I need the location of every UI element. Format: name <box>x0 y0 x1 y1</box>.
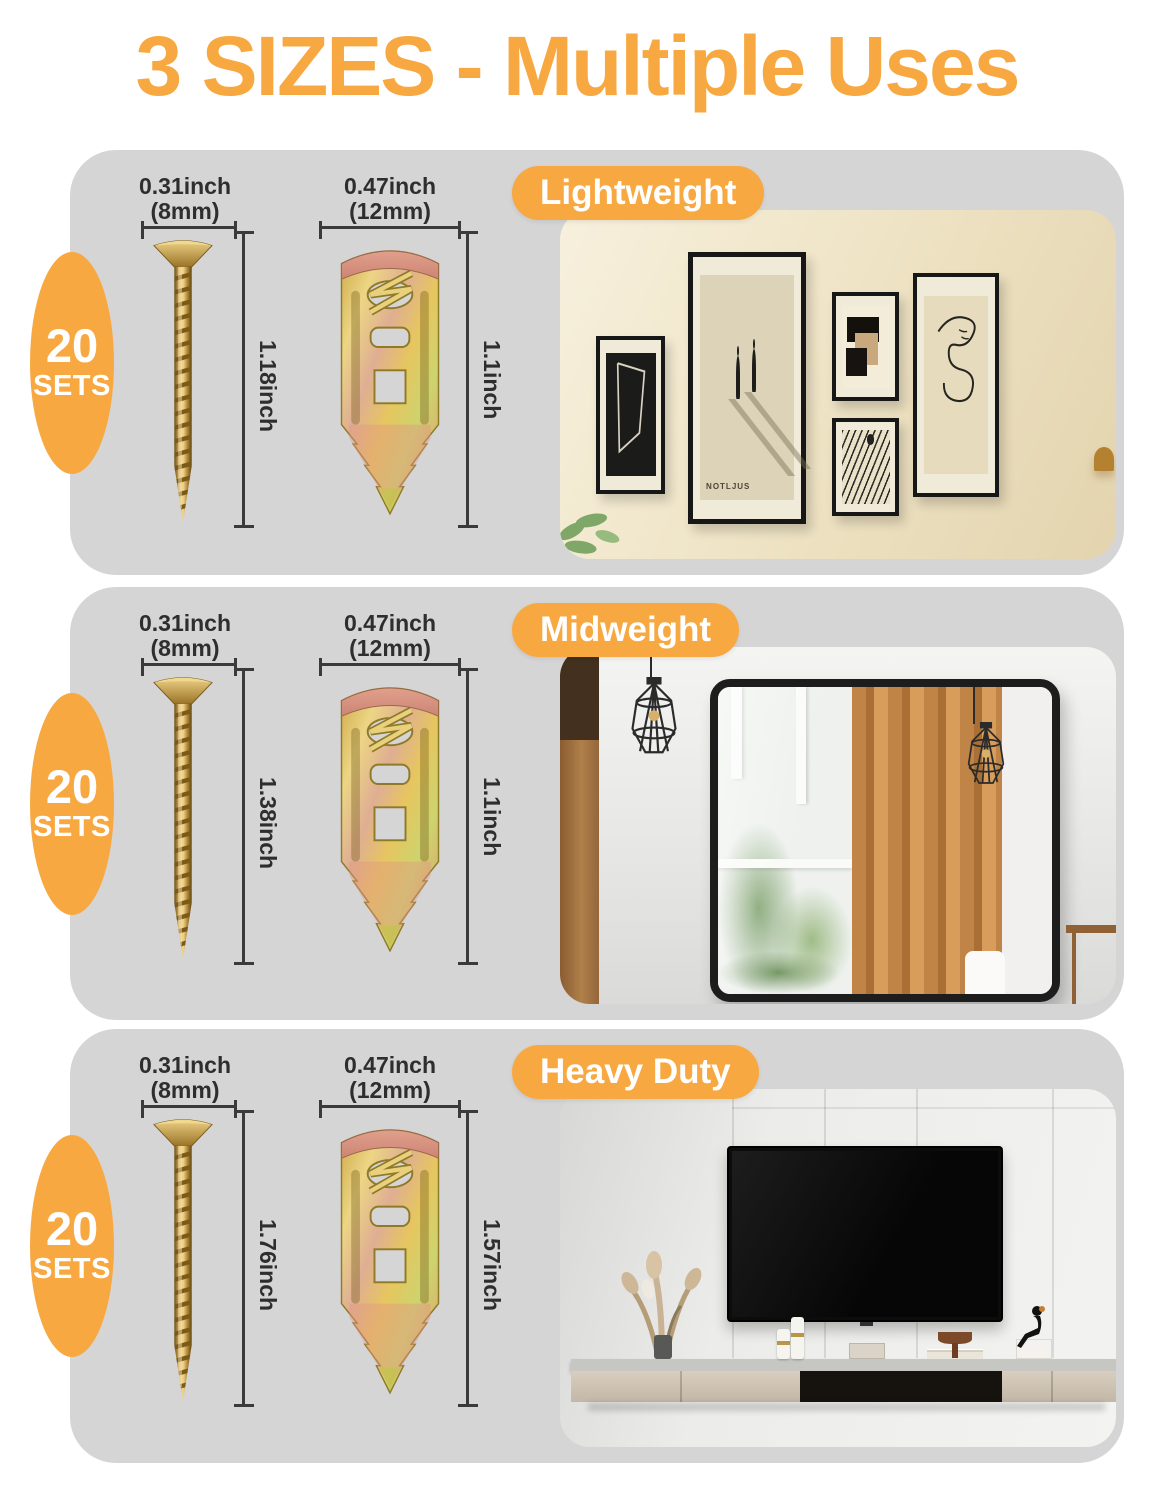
dimension-line <box>320 663 460 666</box>
candle-holder <box>791 1317 804 1359</box>
tv-wall-photo <box>560 1089 1116 1447</box>
console-top <box>571 1359 1116 1370</box>
gallery-wall-photo: NOTLJUS <box>560 210 1116 559</box>
dimension-line <box>142 1105 236 1108</box>
line-art-face <box>924 296 988 473</box>
poster-text: NOTLJUS <box>706 482 750 491</box>
tag-heavy-duty: Heavy Duty <box>512 1045 759 1099</box>
screw-length-label: 1.38inch <box>254 777 281 869</box>
section-midweight: 20 SETS 0.31inch(8mm) 0.47inch(12mm) 1.3… <box>70 587 1124 1020</box>
hanger-length-label: 1.1inch <box>478 777 505 856</box>
screw-image <box>152 234 214 526</box>
wall-mirror <box>710 679 1060 1002</box>
screw-image <box>152 1113 214 1405</box>
picture-frame <box>832 418 898 517</box>
dimension-line <box>142 663 236 666</box>
hanger-image <box>326 1113 454 1405</box>
dimension-line <box>242 232 245 527</box>
infographic-canvas: 3 SIZES - Multiple Uses 20 SETS 0.31inch… <box>0 0 1154 1500</box>
sets-badge: 20 SETS <box>30 252 114 474</box>
picture-frame <box>832 292 898 401</box>
dimension-line <box>320 1105 460 1108</box>
candle-holder <box>777 1329 790 1359</box>
badge-unit: SETS <box>33 369 111 404</box>
side-table <box>1066 925 1116 1004</box>
page-title: 3 SIZES - Multiple Uses <box>0 18 1154 115</box>
hanger-length-label: 1.57inch <box>478 1219 505 1311</box>
plant-leaves <box>560 461 643 559</box>
tv-console <box>571 1371 1116 1402</box>
dimension-line <box>466 232 469 527</box>
screw-length-label: 1.76inch <box>254 1219 281 1311</box>
badge-unit: SETS <box>33 1252 111 1287</box>
dimension-line <box>142 226 236 229</box>
figure-silhouette <box>752 349 756 392</box>
hanger-length-label: 1.1inch <box>478 340 505 419</box>
screw-width-label: 0.31inch(8mm) <box>100 611 270 662</box>
tag-lightweight: Lightweight <box>512 166 764 220</box>
badge-count: 20 <box>46 322 98 369</box>
dried-plant <box>618 1249 708 1359</box>
hanger-image <box>326 671 454 963</box>
hanger-image <box>326 234 454 526</box>
tag-midweight: Midweight <box>512 603 739 657</box>
wood-panel <box>560 647 599 1004</box>
picture-frame <box>913 273 999 497</box>
section-heavy-duty: 20 SETS 0.31inch(8mm) 0.47inch(12mm) 1.7… <box>70 1029 1124 1463</box>
dimension-line <box>242 669 245 964</box>
dimension-line <box>466 669 469 964</box>
badge-count: 20 <box>46 1205 98 1252</box>
hanger-width-label: 0.47inch(12mm) <box>300 174 480 225</box>
mirror-room-photo <box>560 647 1116 1004</box>
hanger-width-label: 0.47inch(12mm) <box>300 1053 480 1104</box>
screw-width-label: 0.31inch(8mm) <box>100 1053 270 1104</box>
badge-unit: SETS <box>33 810 111 845</box>
sets-badge: 20 SETS <box>30 693 114 915</box>
pendant-lamp <box>621 677 687 763</box>
wall-mounted-tv <box>727 1146 1003 1322</box>
screw-width-label: 0.31inch(8mm) <box>100 174 270 225</box>
badge-count: 20 <box>46 763 98 810</box>
dimension-line <box>466 1111 469 1406</box>
dimension-line <box>242 1111 245 1406</box>
figure-silhouette <box>736 356 740 399</box>
section-lightweight: 20 SETS 0.31inch(8mm) 0.47inch(12mm) 1.1… <box>70 150 1124 575</box>
decor-box <box>849 1343 885 1359</box>
dimension-line <box>320 226 460 229</box>
hanger-width-label: 0.47inch(12mm) <box>300 611 480 662</box>
screw-image <box>152 671 214 963</box>
sitting-figurine <box>1013 1304 1053 1350</box>
pedestal-bowl <box>938 1332 972 1358</box>
sets-badge: 20 SETS <box>30 1135 114 1357</box>
wall-lamp <box>1094 447 1114 471</box>
picture-frame: NOTLJUS <box>688 252 806 524</box>
screw-length-label: 1.18inch <box>254 340 281 432</box>
